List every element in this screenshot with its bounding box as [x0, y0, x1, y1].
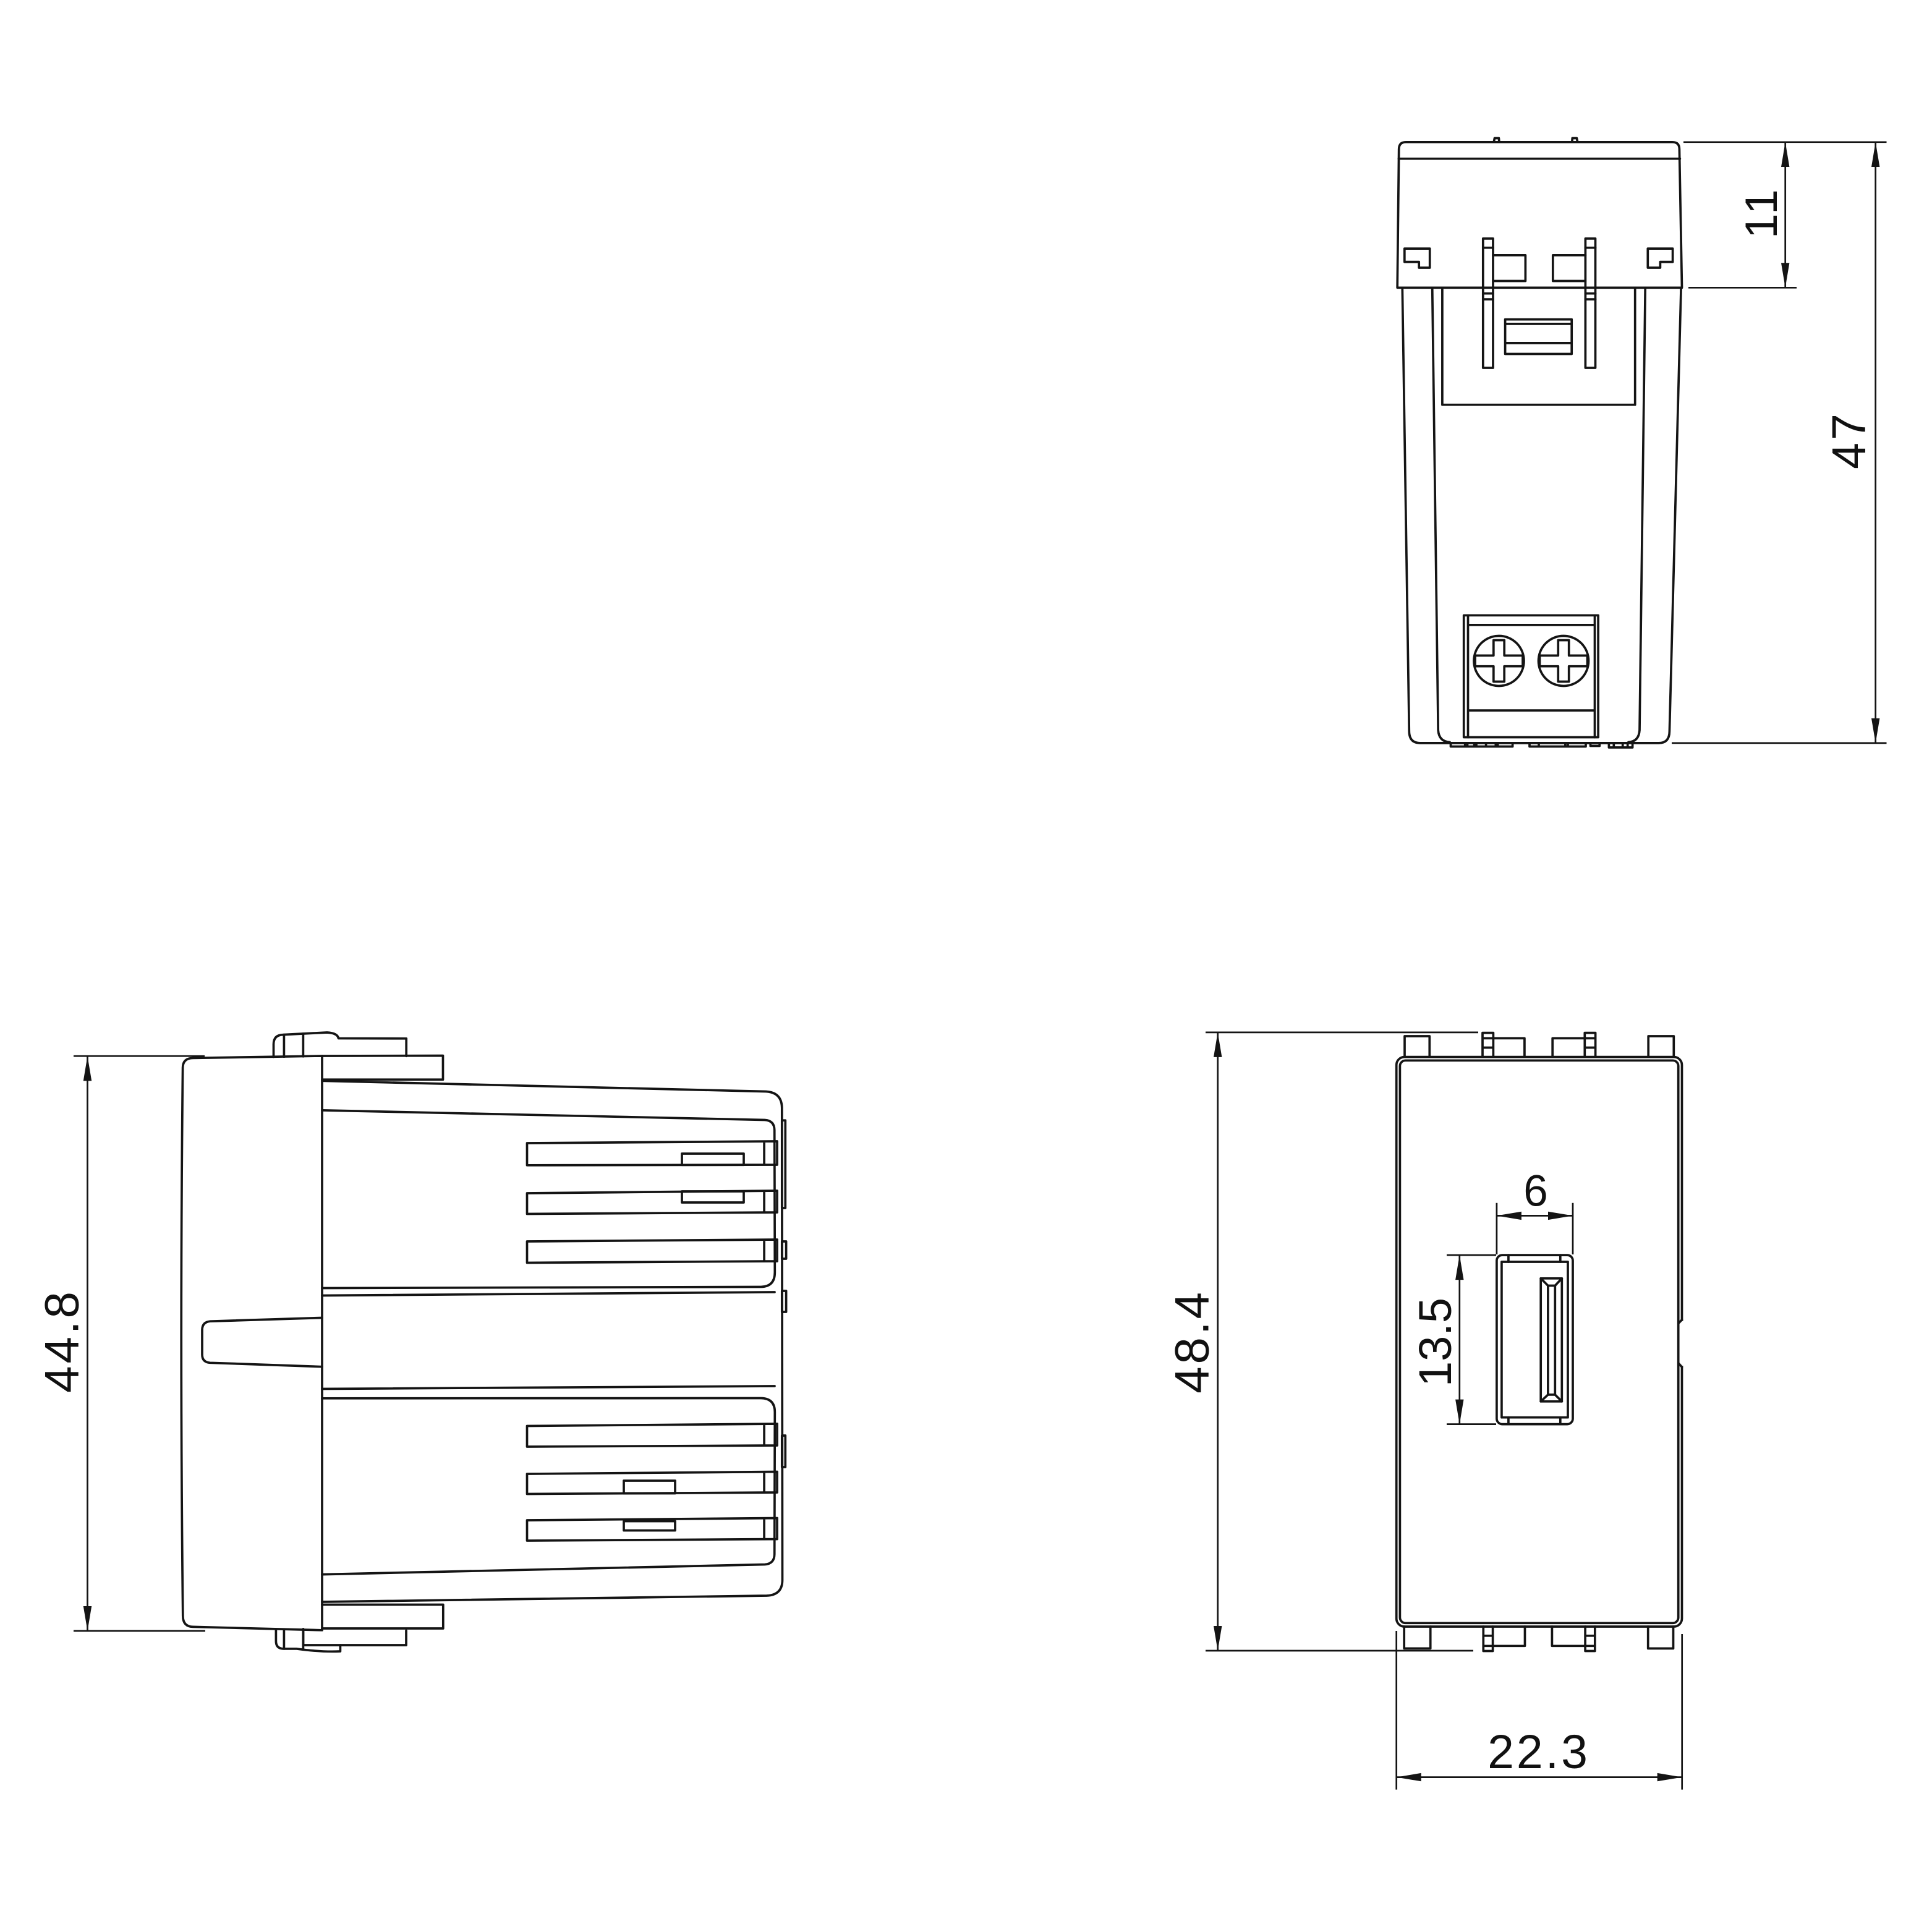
svg-text:48.4: 48.4: [1165, 1290, 1219, 1394]
svg-text:47: 47: [1823, 411, 1876, 469]
svg-text:44.8: 44.8: [35, 1289, 89, 1393]
svg-text:6: 6: [1523, 1167, 1548, 1216]
svg-text:13.5: 13.5: [1410, 1298, 1461, 1387]
svg-text:22.3: 22.3: [1487, 1726, 1590, 1779]
svg-text:11: 11: [1737, 187, 1787, 239]
